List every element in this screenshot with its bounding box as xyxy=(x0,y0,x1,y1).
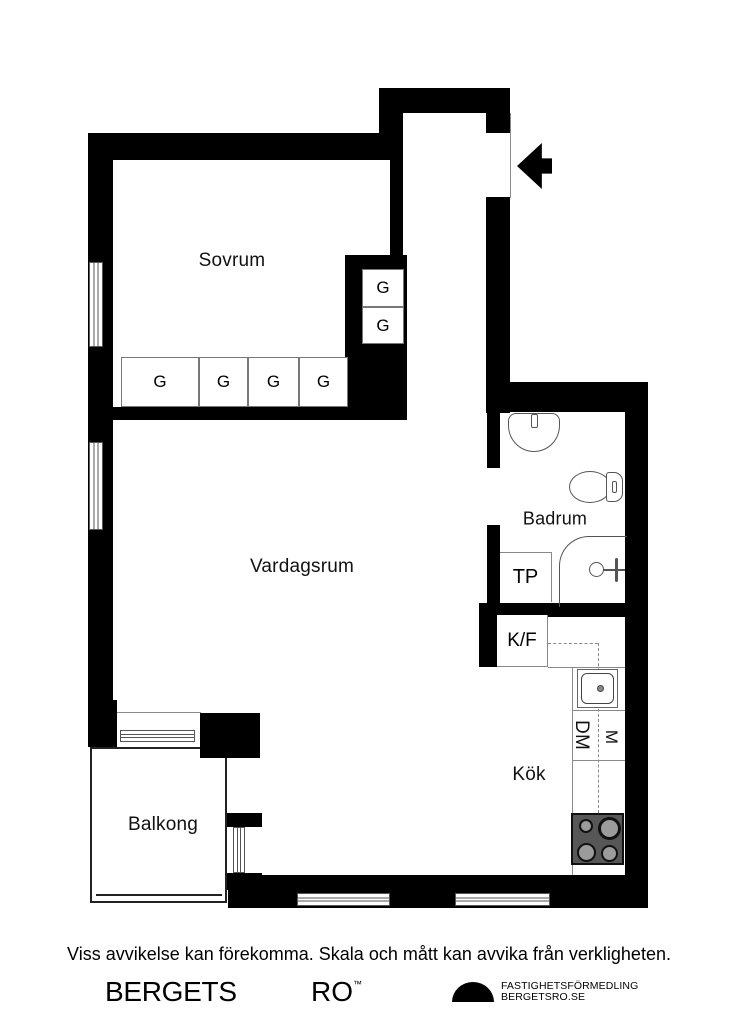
agency-line1: FASTIGHETSFÖRMEDLING xyxy=(501,981,638,992)
shower-mixer-stem xyxy=(603,569,625,571)
wardrobe-box: G xyxy=(248,357,299,407)
wardrobe-label: G xyxy=(376,278,389,298)
entry-opening-line xyxy=(510,113,511,198)
wardrobe-label: G xyxy=(376,316,389,336)
wall-right xyxy=(625,382,648,908)
window-bottom-2 xyxy=(455,893,550,906)
wall-balcony-window-top xyxy=(227,813,262,827)
balcony-door-reveal-line xyxy=(117,712,201,713)
toilet-bowl xyxy=(569,471,611,503)
room-label-kitchen: Kök xyxy=(512,764,545,786)
shower-mixer-icon xyxy=(589,562,604,577)
burner xyxy=(598,817,621,840)
balcony-door xyxy=(120,730,195,742)
wall-balcony-a xyxy=(88,700,117,747)
wardrobe-box: G xyxy=(299,357,348,407)
wardrobe-label: G xyxy=(317,372,330,392)
trademark: ™ xyxy=(353,979,362,989)
room-label-bedroom: Sovrum xyxy=(199,250,266,272)
wall-bathroom-left-lower xyxy=(487,525,500,607)
room-label-bathroom: Badrum xyxy=(523,509,587,530)
counter-divider-line xyxy=(572,710,625,711)
window-balcony-side xyxy=(233,827,245,873)
tp-closet: TP xyxy=(500,552,552,602)
disclaimer: Viss avvikelse kan förekomma. Skala och … xyxy=(67,944,671,965)
window-bedroom xyxy=(89,262,103,347)
fridge-freezer: K/F xyxy=(497,615,548,667)
wall-left xyxy=(88,133,113,747)
wardrobe-box: G xyxy=(362,307,404,344)
brand-ro: RO™ xyxy=(311,976,362,1008)
label-micro: M xyxy=(601,730,621,744)
floor-plan: G G G G G G TP K/F Sovrum Vardagsrum Bad… xyxy=(0,0,738,1024)
wardrobe-label: G xyxy=(153,372,166,392)
entry-arrow-icon xyxy=(517,142,552,190)
brand-ro-text: RO xyxy=(311,976,353,1007)
wall-hallway-right xyxy=(486,197,510,413)
room-label-balcony: Balkong xyxy=(128,814,198,836)
wardrobe-box: G xyxy=(199,357,248,407)
counter-top-line xyxy=(548,667,625,668)
room-label-living: Vardagsrum xyxy=(250,556,354,578)
balcony-railing-line xyxy=(96,894,222,896)
burner xyxy=(601,845,618,862)
burner xyxy=(579,819,593,833)
agency-text: FASTIGHETSFÖRMEDLING BERGETSRO.SE xyxy=(501,981,638,1002)
shower-mixer-handle xyxy=(615,558,618,582)
upper-cabinet-dash-h xyxy=(548,643,598,644)
wardrobe-box: G xyxy=(362,269,404,307)
wall-bedroom-living-divider xyxy=(88,407,407,420)
label-dishwasher: DM xyxy=(570,720,592,750)
brand-bergets: BERGETS xyxy=(105,976,237,1008)
window-bottom-1 xyxy=(297,893,390,906)
burner xyxy=(577,843,596,862)
window-living xyxy=(89,442,103,530)
agency-line2: BERGETSRO.SE xyxy=(501,992,638,1003)
kitchen-sink-tap xyxy=(597,685,604,692)
wall-entry-right-stub xyxy=(486,113,510,133)
counter-divider-line xyxy=(572,760,625,761)
stove xyxy=(571,813,624,865)
wardrobe-box: G xyxy=(121,357,199,407)
wardrobe-label: G xyxy=(267,372,280,392)
wall-bottom xyxy=(228,875,648,908)
wardrobe-label: G xyxy=(217,372,230,392)
bathroom-sink-tap xyxy=(531,414,538,428)
floorplan-page: { "plan": { "rooms": { "bedroom": "Sovru… xyxy=(0,0,738,1024)
wall-balcony-b xyxy=(200,713,260,758)
wall-kitchen-left-stub xyxy=(479,603,497,667)
wall-bedroom-right xyxy=(390,160,403,258)
kf-label: K/F xyxy=(507,630,537,652)
wall-bathroom-left-upper xyxy=(487,412,500,468)
toilet-flush-button xyxy=(612,481,617,493)
tp-label: TP xyxy=(513,566,539,589)
wall-bedroom-top xyxy=(88,133,403,160)
